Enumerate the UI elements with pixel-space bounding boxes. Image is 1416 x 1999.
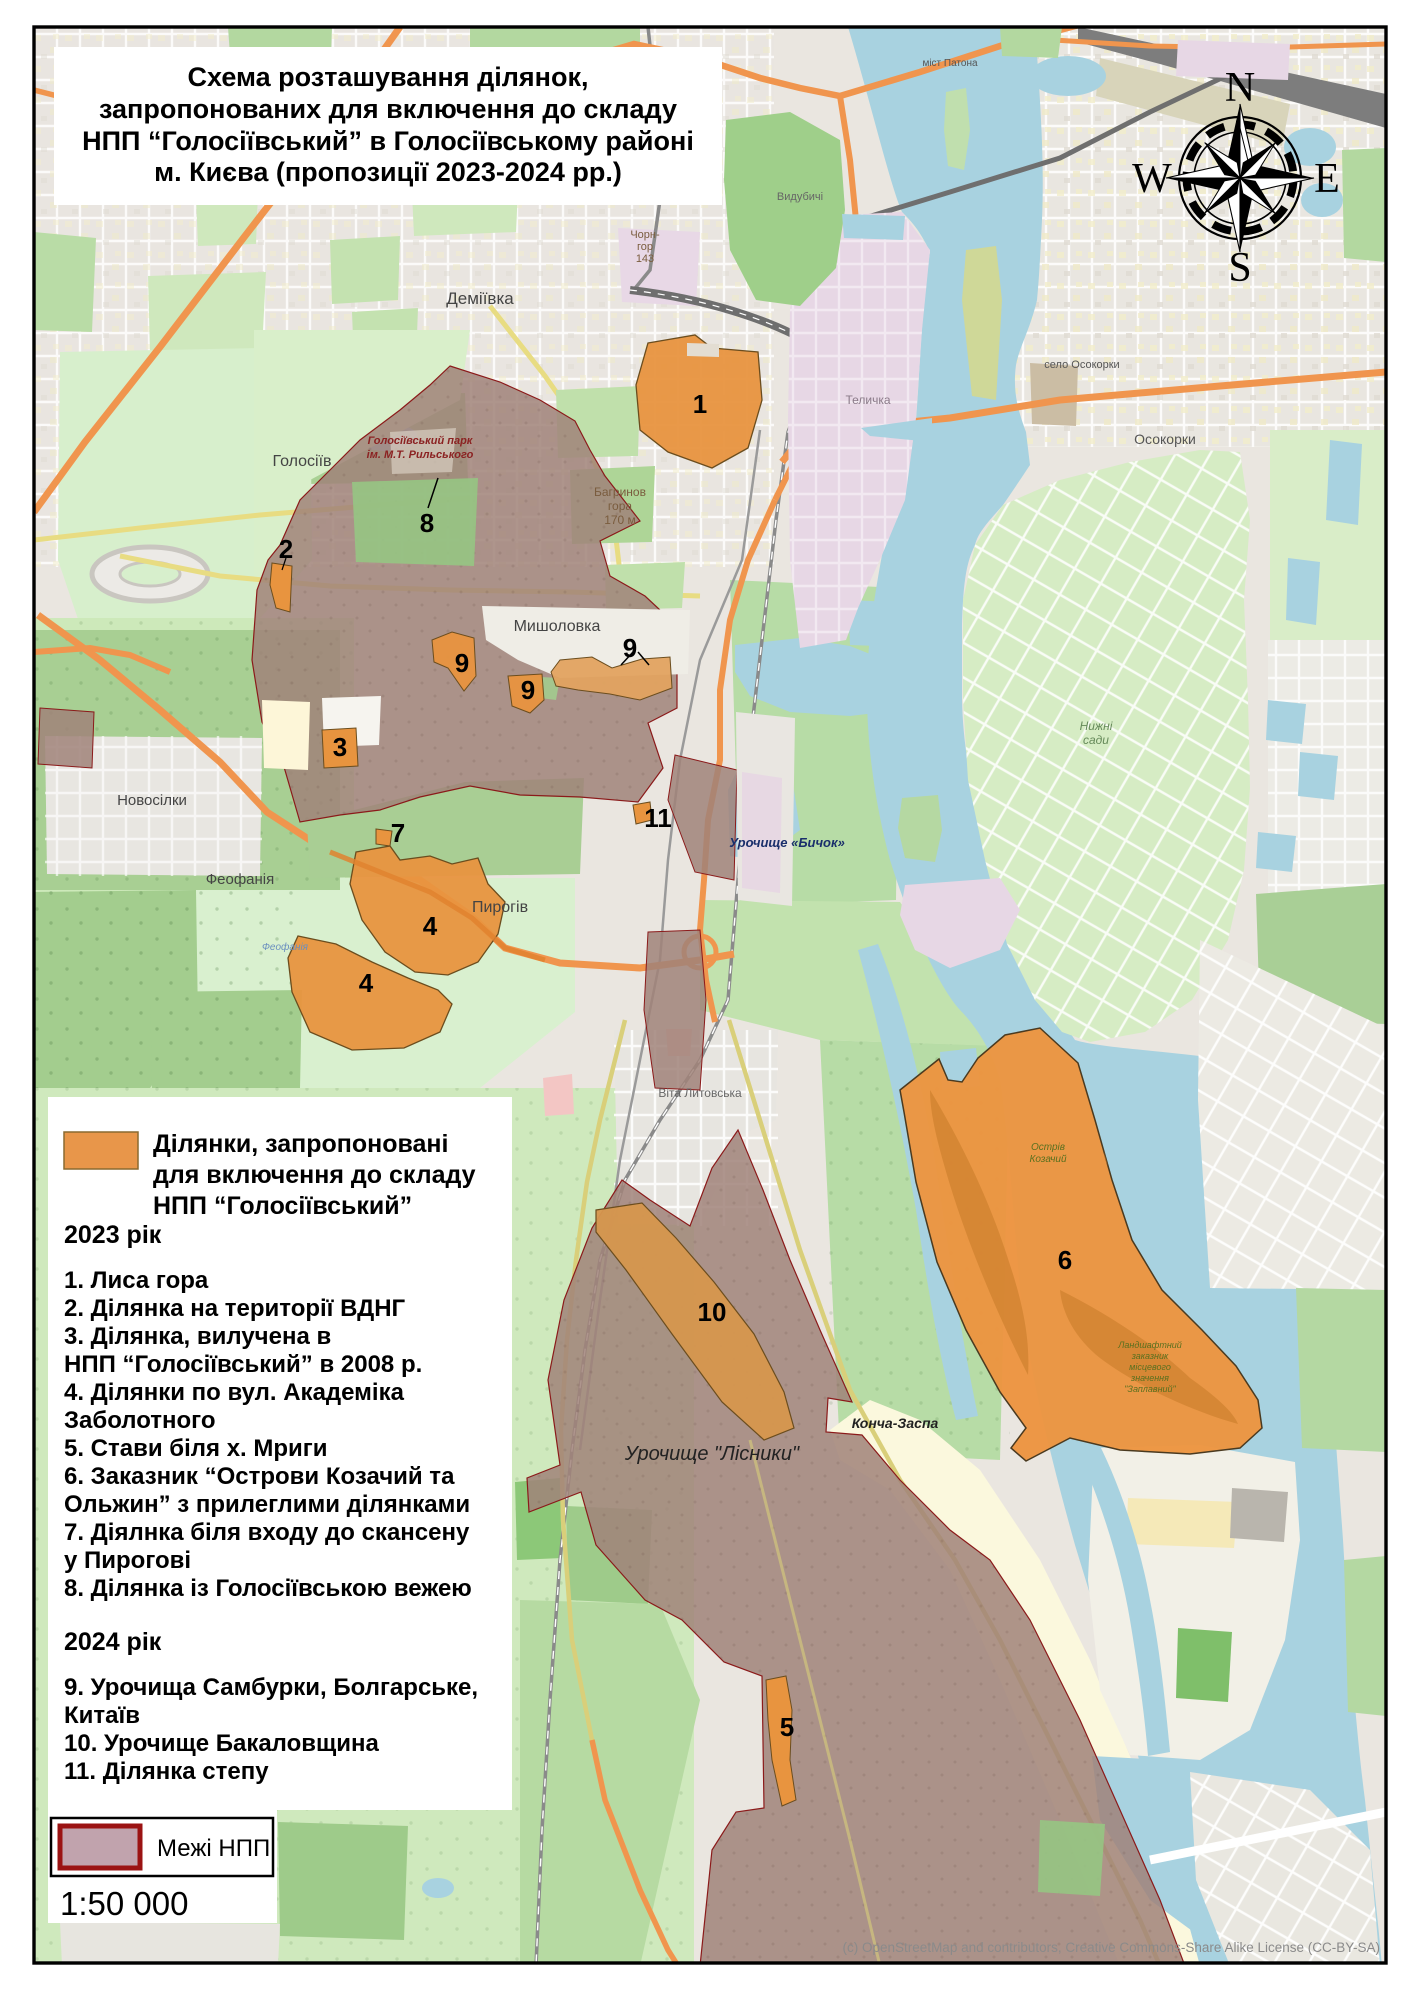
svg-text:для включення до складу: для включення до складу — [153, 1161, 476, 1189]
svg-text:Козачий: Козачий — [1029, 1154, 1067, 1165]
svg-text:N: N — [1225, 65, 1255, 111]
svg-text:Мишоловка: Мишоловка — [514, 618, 601, 635]
svg-text:2023 рік: 2023 рік — [64, 1221, 162, 1249]
svg-text:2: 2 — [279, 534, 293, 564]
svg-text:Ольжин” з прилеглими ділянками: Ольжин” з прилеглими ділянками — [64, 1491, 470, 1518]
svg-text:Феофанія: Феофанія — [262, 941, 309, 953]
svg-text:4: 4 — [423, 911, 438, 941]
svg-text:6: 6 — [1058, 1245, 1072, 1275]
svg-text:у Пирогові: у Пирогові — [64, 1547, 191, 1574]
svg-text:Чорн-: Чорн- — [630, 229, 660, 241]
svg-text:міст Патона: міст Патона — [922, 58, 978, 69]
svg-text:11: 11 — [644, 803, 672, 833]
svg-text:місцевого: місцевого — [1129, 1362, 1171, 1372]
svg-text:9: 9 — [455, 648, 469, 678]
svg-text:сади: сади — [1083, 733, 1109, 747]
svg-text:7. Діялнка біля входу до сканс: 7. Діялнка біля входу до скансену — [64, 1519, 470, 1546]
svg-text:5: 5 — [780, 1712, 794, 1742]
svg-text:Заболотного: Заболотного — [64, 1407, 216, 1434]
svg-text:Урочище «Бичок»: Урочище «Бичок» — [729, 835, 845, 850]
svg-text:S: S — [1228, 245, 1251, 291]
svg-text:Острів: Острів — [1031, 1142, 1065, 1153]
svg-text:НПП “Голосіївський” в 2008 р.: НПП “Голосіївський” в 2008 р. — [64, 1351, 422, 1378]
svg-text:2. Ділянка на території ВДНГ: 2. Ділянка на території ВДНГ — [64, 1295, 406, 1322]
svg-text:значення: значення — [1130, 1373, 1169, 1383]
svg-text:4: 4 — [359, 968, 374, 998]
svg-text:143: 143 — [636, 253, 654, 265]
svg-text:9. Урочища Самбурки, Болгарськ: 9. Урочища Самбурки, Болгарське, — [64, 1674, 478, 1701]
svg-text:Конча-Заспа: Конча-Заспа — [852, 1415, 939, 1431]
svg-text:W: W — [1132, 156, 1172, 202]
svg-text:Голосіїв: Голосіїв — [272, 453, 331, 470]
svg-text:2024 рік: 2024 рік — [64, 1628, 162, 1656]
svg-text:Ділянки, запропоновані: Ділянки, запропоновані — [153, 1130, 448, 1158]
svg-text:Осокорки: Осокорки — [1134, 431, 1196, 447]
svg-text:Урочище "Лісники": Урочище "Лісники" — [624, 1443, 800, 1465]
svg-text:Видубичі: Видубичі — [777, 191, 823, 203]
svg-text:ім. М.Т. Рильського: ім. М.Т. Рильського — [367, 449, 474, 461]
svg-text:НПП “Голосіївський” в Голосіїв: НПП “Голосіївський” в Голосіївському рай… — [82, 126, 694, 156]
svg-text:9: 9 — [521, 675, 535, 705]
svg-text:11. Ділянка степу: 11. Ділянка степу — [64, 1758, 269, 1785]
svg-text:Багринов: Багринов — [594, 485, 646, 499]
svg-text:6. Заказник “Острови Козачий т: 6. Заказник “Острови Козачий та — [64, 1463, 455, 1490]
svg-text:Віта Литовська: Віта Литовська — [658, 1086, 742, 1100]
svg-text:3: 3 — [333, 732, 347, 762]
svg-text:запропонованих для включення д: запропонованих для включення до складу — [99, 94, 677, 124]
svg-text:заказник: заказник — [1131, 1351, 1169, 1361]
svg-text:"Заплавний": "Заплавний" — [1124, 1384, 1176, 1394]
svg-text:Пирогів: Пирогів — [472, 899, 528, 916]
svg-text:5. Стави біля х. Мриги: 5. Стави біля х. Мриги — [64, 1435, 328, 1462]
svg-text:4. Ділянки по вул. Академіка: 4. Ділянки по вул. Академіка — [64, 1379, 405, 1406]
svg-text:8. Ділянка із Голосіївською ве: 8. Ділянка із Голосіївською вежею — [64, 1575, 472, 1602]
svg-text:10. Урочище Бакаловщина: 10. Урочище Бакаловщина — [64, 1730, 380, 1757]
svg-text:(c) OpenStreetMap and contribu: (c) OpenStreetMap and contributors, Crea… — [843, 1940, 1380, 1955]
svg-text:1: 1 — [693, 389, 707, 419]
svg-text:1:50 000: 1:50 000 — [60, 1885, 188, 1922]
svg-text:1. Лиса гора: 1. Лиса гора — [64, 1267, 209, 1294]
svg-text:гор: гор — [637, 241, 653, 253]
svg-text:Феофанія: Феофанія — [206, 871, 275, 888]
svg-text:Теличка: Теличка — [845, 393, 890, 407]
svg-text:8: 8 — [420, 508, 434, 538]
svg-text:Голосіївський парк: Голосіївський парк — [368, 435, 474, 447]
svg-text:Нижні: Нижні — [1080, 719, 1113, 733]
svg-text:Новосілки: Новосілки — [117, 792, 187, 809]
svg-text:E: E — [1314, 156, 1340, 202]
svg-text:Ландшафтний: Ландшафтний — [1117, 1340, 1182, 1350]
svg-text:9: 9 — [623, 633, 637, 663]
svg-text:село Осокорки: село Осокорки — [1044, 359, 1119, 371]
svg-text:Китаїв: Китаїв — [64, 1702, 140, 1729]
svg-text:3. Ділянка, вилучена в: 3. Ділянка, вилучена в — [64, 1323, 331, 1350]
svg-text:Межі НПП: Межі НПП — [157, 1835, 270, 1862]
svg-text:м. Києва (пропозиції 2023-2024: м. Києва (пропозиції 2023-2024 рр.) — [154, 157, 622, 187]
svg-text:Схема розташування ділянок,: Схема розташування ділянок, — [188, 62, 589, 92]
svg-text:170 м: 170 м — [604, 513, 636, 527]
svg-text:НПП “Голосіївський”: НПП “Голосіївський” — [153, 1192, 412, 1220]
svg-text:10: 10 — [698, 1297, 727, 1327]
svg-text:7: 7 — [391, 818, 405, 848]
svg-text:Деміївка: Деміївка — [446, 289, 514, 308]
svg-text:гора: гора — [608, 499, 632, 513]
